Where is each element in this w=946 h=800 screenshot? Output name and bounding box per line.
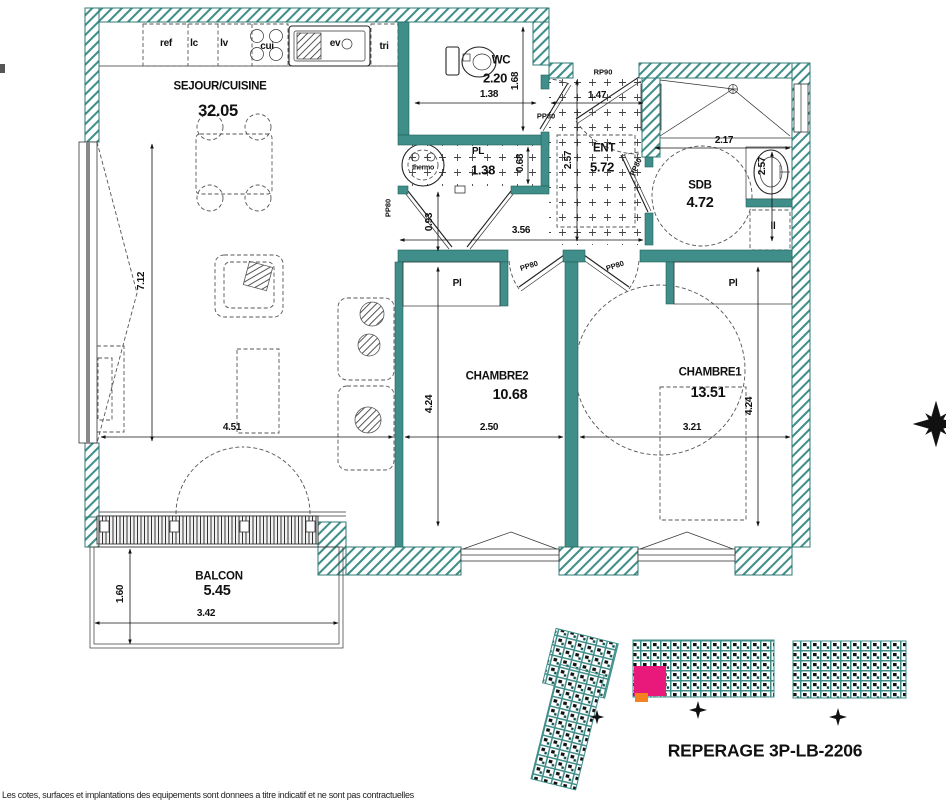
dim-ent-h: 2.57 [564,151,574,169]
door-label-wc: PP80 [537,112,555,120]
door-label-entry: RP90 [594,68,613,76]
room-area-wc: 2.20 [483,72,507,85]
washer-label: ll [771,222,776,232]
room-area-balcon: 5.45 [203,584,230,599]
room-label-chambre2: CHAMBRE2 [466,371,529,383]
floor-plan: .wl{fill:url(#hatch);stroke:#2f7a75;stro… [0,0,946,800]
dim-sdb-h: 2.57 [758,157,768,175]
dim-wc-h: 1.68 [511,72,521,90]
kitchen-label-ev: ev [330,39,341,49]
keyplan-title: REPERAGE 3P-LB-2206 [668,742,863,760]
room-area-chambre2: 10.68 [493,388,528,403]
dim-hall-h: 0.93 [425,213,435,231]
page-edge-mark [0,64,5,73]
room-label-ent: ENT [593,143,615,155]
room-area-chambre1: 13.51 [691,386,726,401]
dim-ch1-h: 4.24 [745,397,755,415]
dim-ch2-w: 2.50 [480,423,498,433]
dim-sejour-w: 4.51 [223,423,241,433]
room-area-ent: 5.72 [590,161,614,174]
kitchen-label-ref: ref [160,39,172,49]
highlighted-unit [634,666,666,696]
dim-ch1-w: 3.21 [683,423,701,433]
kitchen-label-cui: cui [260,42,274,52]
plan-drawing: .wl{fill:url(#hatch);stroke:#2f7a75;stro… [0,0,946,800]
closet-label-ch2: Pl [453,279,462,289]
room-area-pl: 1.38 [471,164,495,177]
room-area-sdb: 4.72 [686,196,713,211]
closet-label-ch1: Pl [729,279,738,289]
kitchen-label-lc: lc [190,39,198,49]
dim-sejour-h: 7.12 [137,272,147,290]
water-heater-label: thermo [412,165,434,172]
kitchen-label-lv: lv [220,39,228,49]
room-label-chambre1: CHAMBRE1 [679,367,742,379]
outer-walls [85,8,810,575]
room-label-sdb: SDB [688,180,711,192]
key-plan [519,401,946,792]
dim-sdb-w: 2.17 [715,136,733,146]
secondary-unit [635,693,648,702]
dim-pl-h: 0.68 [516,154,526,172]
kitchen-counter [99,24,398,66]
dim-ent-w: 1.47 [588,91,606,101]
dim-wc-w: 1.38 [480,90,498,100]
dim-balcon-w: 3.42 [197,609,215,619]
room-label-balcon: BALCON [195,571,242,583]
footer-note: Les cotes, surfaces et implantations des… [2,791,946,800]
dim-balcon-h: 1.60 [116,585,126,603]
dim-ch2-h: 4.24 [425,395,435,413]
dim-hall-w: 3.56 [512,226,530,236]
room-label-pl: PL [472,147,484,157]
room-label-sejour: SEJOUR/CUISINE [174,81,267,93]
door-label-hall: PP80 [384,199,392,217]
kitchen-label-tri: tri [379,42,388,52]
room-area-sejour: 32.05 [198,103,238,120]
room-label-wc: WC [492,55,511,67]
compass-rose [913,401,946,448]
